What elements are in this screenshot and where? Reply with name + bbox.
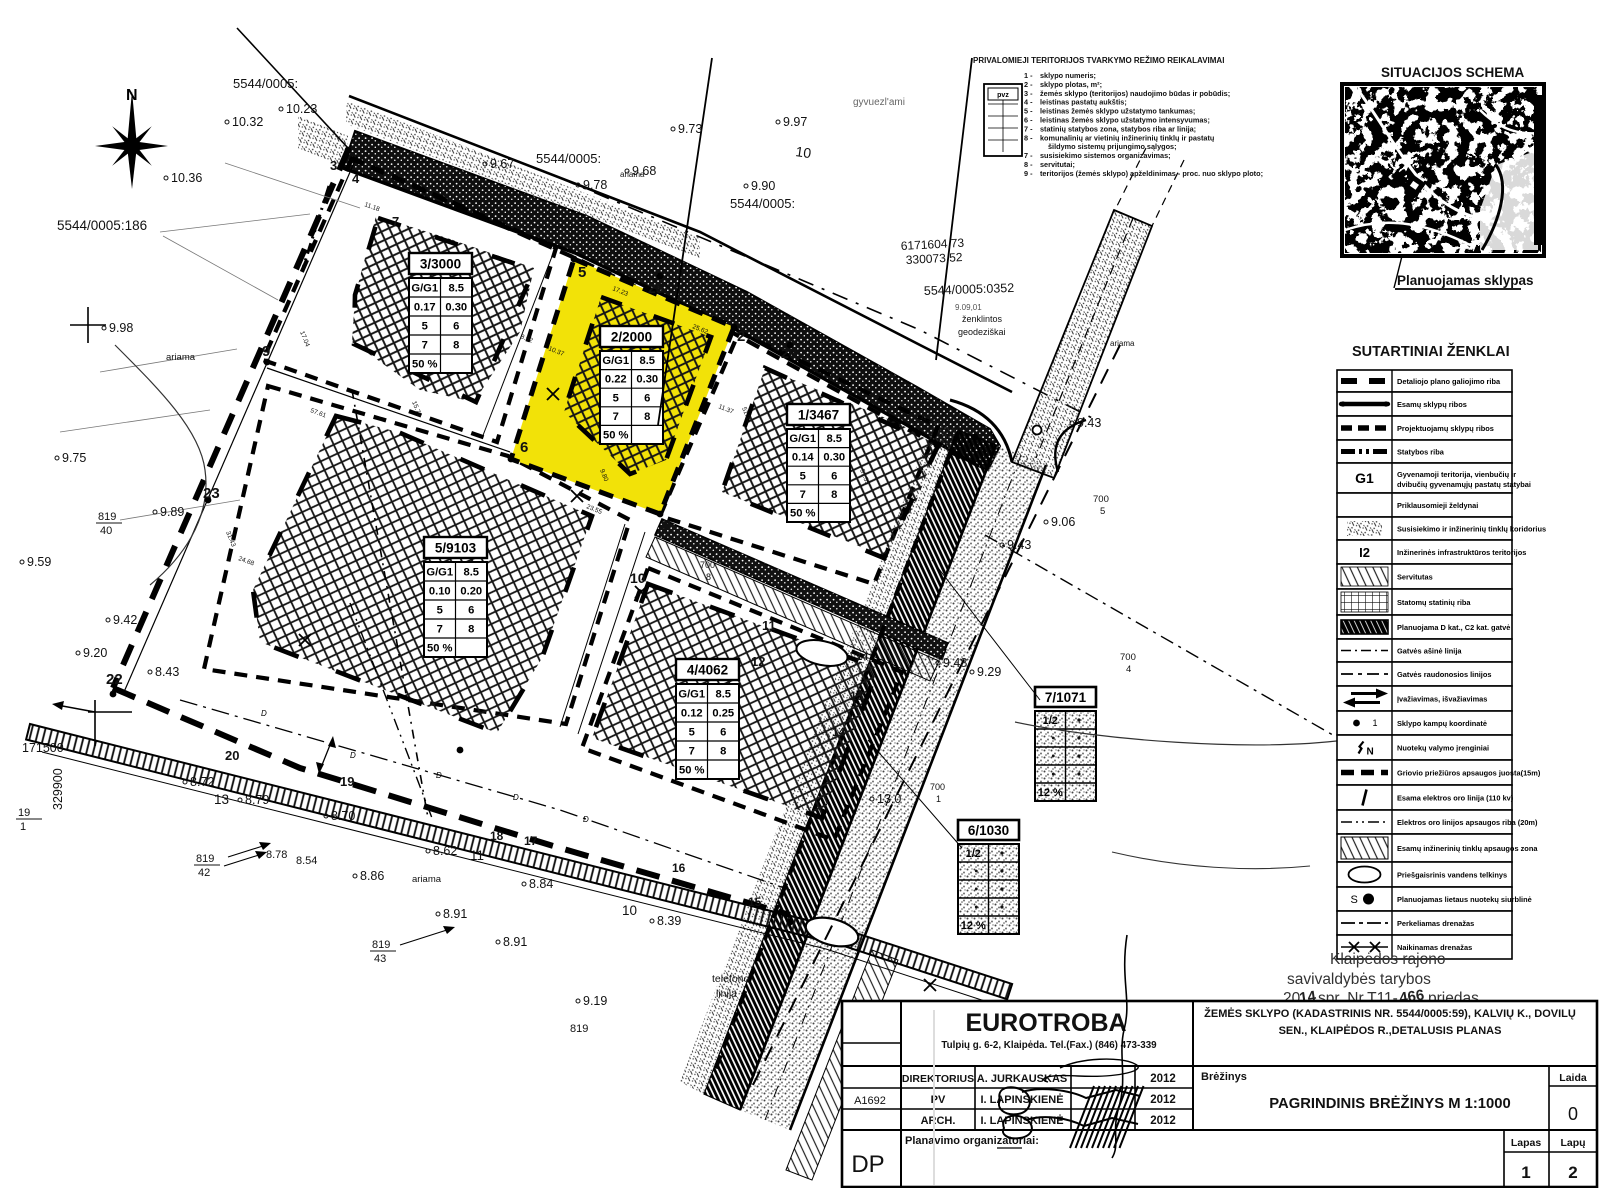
svg-text:10: 10: [622, 903, 637, 918]
svg-text:8.54: 8.54: [296, 855, 317, 867]
svg-text:6/1030: 6/1030: [968, 823, 1009, 838]
svg-text:I. LAPINSKIENĖ: I. LAPINSKIENĖ: [980, 1093, 1063, 1106]
svg-text:0: 0: [1568, 1104, 1578, 1124]
svg-text:5: 5: [689, 727, 695, 739]
svg-text:Lapų: Lapų: [1560, 1137, 1585, 1149]
svg-text:7 -: 7 -: [1024, 124, 1033, 133]
svg-text:700: 700: [1093, 494, 1109, 505]
svg-text:ženklintos: ženklintos: [962, 314, 1003, 324]
svg-text:8.78: 8.78: [266, 849, 287, 861]
svg-text:Planavimo organizatoriai:: Planavimo organizatoriai:: [905, 1135, 1039, 1147]
svg-text:17: 17: [524, 834, 538, 848]
svg-text:1: 1: [936, 794, 941, 804]
svg-text:EUROTROBA: EUROTROBA: [965, 1009, 1126, 1037]
svg-text:2 -: 2 -: [1024, 80, 1033, 89]
svg-text:8.84: 8.84: [529, 877, 553, 891]
svg-text:50 %: 50 %: [790, 508, 816, 520]
svg-text:9.73: 9.73: [678, 122, 702, 136]
svg-text:5: 5: [613, 392, 619, 404]
svg-text:Nuotekų valymo įrenginiai: Nuotekų valymo įrenginiai: [1397, 744, 1489, 753]
svg-text:D: D: [350, 751, 356, 760]
svg-text:2012: 2012: [1150, 1094, 1176, 1106]
svg-text:2: 2: [737, 328, 745, 345]
svg-text:sklypo numeris;: sklypo numeris;: [1040, 71, 1096, 80]
svg-text:13: 13: [850, 689, 864, 703]
svg-text:A1692: A1692: [854, 1095, 886, 1107]
svg-text:8.5: 8.5: [639, 355, 655, 367]
svg-text:8.62: 8.62: [433, 844, 457, 858]
svg-text:9.67: 9.67: [490, 157, 514, 171]
svg-text:Brėžinys: Brėžinys: [1201, 1071, 1247, 1083]
svg-text:171500: 171500: [22, 741, 64, 755]
svg-text:700: 700: [930, 782, 945, 792]
svg-text:819: 819: [196, 853, 214, 865]
svg-text:šildymo sistemų prijungimo sąl: šildymo sistemų prijungimo sąlygos;: [1048, 142, 1177, 151]
svg-text:Projektuojamų sklypų ribos: Projektuojamų sklypų ribos: [1397, 424, 1494, 433]
svg-text:G/G1: G/G1: [789, 433, 816, 445]
svg-text:G/G1: G/G1: [426, 567, 453, 579]
svg-text:0.22: 0.22: [605, 374, 627, 386]
svg-text:Tulpių g. 6-2, Klaipėda. Tel.(: Tulpių g. 6-2, Klaipėda. Tel.(Fax.) (846…: [941, 1040, 1157, 1051]
svg-text:ariama: ariama: [1110, 339, 1135, 348]
svg-text:6: 6: [520, 439, 528, 456]
svg-text:22: 22: [106, 671, 123, 688]
svg-text:Susisiekimo ir inžinerinių tin: Susisiekimo ir inžinerinių tinklų korido…: [1397, 525, 1546, 534]
svg-text:8.79: 8.79: [245, 793, 269, 807]
svg-text:Priešgaisrinis vandens telkiny: Priešgaisrinis vandens telkinys: [1397, 871, 1507, 880]
svg-text:9.59: 9.59: [27, 555, 51, 569]
svg-text:42: 42: [198, 867, 210, 879]
svg-text:8 -: 8 -: [1024, 160, 1033, 169]
svg-text:Griovio priežiūros apsaugos ju: Griovio priežiūros apsaugos juosta(15m): [1397, 769, 1541, 778]
svg-text:2012: 2012: [1150, 1073, 1176, 1085]
svg-text:12: 12: [751, 654, 765, 669]
svg-text:9.43: 9.43: [1077, 416, 1101, 430]
svg-text:9 -: 9 -: [1024, 169, 1033, 178]
svg-text:3: 3: [663, 517, 671, 534]
svg-text:8 -: 8 -: [1024, 133, 1033, 142]
svg-text:telefono: telefono: [712, 973, 750, 985]
svg-text:ariama: ariama: [412, 874, 442, 885]
svg-text:Elektros oro linijos apsaugos: Elektros oro linijos apsaugos riba (20m): [1397, 818, 1538, 827]
svg-text:0.14: 0.14: [792, 452, 815, 464]
svg-text:I2: I2: [1359, 545, 1370, 560]
svg-text:6 -: 6 -: [1024, 116, 1033, 125]
svg-text:Detaliojo plano galiojimo riba: Detaliojo plano galiojimo riba: [1397, 377, 1501, 386]
svg-text:819: 819: [570, 1023, 588, 1035]
svg-text:D: D: [261, 709, 267, 718]
svg-text:7: 7: [422, 340, 428, 352]
svg-text:9.09,01: 9.09,01: [955, 303, 982, 312]
svg-text:8.72: 8.72: [190, 775, 214, 789]
svg-text:16: 16: [672, 861, 686, 875]
svg-text:8: 8: [720, 746, 726, 758]
svg-text:0.20: 0.20: [460, 586, 482, 598]
svg-text:D: D: [436, 771, 442, 780]
svg-text:6: 6: [720, 727, 726, 739]
svg-text:8.5: 8.5: [448, 283, 464, 295]
svg-text:leistinas pastatų aukštis;: leistinas pastatų aukštis;: [1040, 98, 1127, 107]
svg-text:9.19: 9.19: [583, 994, 607, 1008]
svg-text:12 %: 12 %: [961, 920, 986, 932]
svg-text:Gatvės raudonosios linijos: Gatvės raudonosios linijos: [1397, 670, 1491, 679]
svg-text:linija: linija: [716, 988, 737, 1000]
svg-text:9.98: 9.98: [109, 321, 133, 335]
svg-text:10.23: 10.23: [286, 102, 317, 116]
svg-text:S: S: [1351, 894, 1358, 906]
svg-text:6: 6: [831, 470, 837, 482]
svg-text:Planuojamas lietaus nuotekų si: Planuojamas lietaus nuotekų siurblinė: [1397, 895, 1532, 904]
svg-text:13.0: 13.0: [877, 792, 901, 806]
svg-text:5/9103: 5/9103: [435, 541, 477, 556]
svg-text:Perkeliamas drenažas: Perkeliamas drenažas: [1397, 919, 1474, 928]
svg-text:Statybos riba: Statybos riba: [1397, 448, 1445, 457]
svg-text:2012: 2012: [1150, 1115, 1176, 1127]
svg-text:1: 1: [1373, 718, 1378, 728]
svg-text:PRIVALOMIEJI TERITORIJOS TVARK: PRIVALOMIEJI TERITORIJOS TVARKYMO REŽIMO…: [973, 56, 1224, 65]
svg-text:8: 8: [644, 411, 650, 423]
svg-text:ariama: ariama: [166, 352, 196, 363]
svg-text:5: 5: [422, 321, 428, 333]
svg-text:8: 8: [831, 489, 837, 501]
svg-text:9.90: 9.90: [751, 179, 775, 193]
svg-text:50 %: 50 %: [603, 430, 629, 442]
svg-text:8.5: 8.5: [715, 689, 731, 701]
svg-text:20: 20: [781, 345, 797, 361]
svg-text:5: 5: [437, 605, 443, 617]
svg-text:19: 19: [18, 807, 30, 819]
svg-text:3/3000: 3/3000: [420, 257, 461, 272]
svg-text:7: 7: [613, 411, 619, 423]
svg-text:25: 25: [648, 280, 664, 296]
svg-text:8: 8: [468, 624, 474, 636]
svg-text:11: 11: [762, 618, 776, 633]
svg-text:PAGRINDINIS BRĖŽINYS M 1:1000: PAGRINDINIS BRĖŽINYS M 1:1000: [1269, 1094, 1510, 1112]
svg-text:18: 18: [490, 829, 504, 843]
svg-text:leistinas žemės sklypo užstaty: leistinas žemės sklypo užstatymo tankuma…: [1040, 107, 1195, 116]
svg-text:ŽEMĖS SKLYPO (KADASTRINIS NR.: ŽEMĖS SKLYPO (KADASTRINIS NR. 5544/0005:…: [1204, 1007, 1576, 1020]
svg-text:8.70: 8.70: [331, 809, 355, 823]
svg-text:8.91: 8.91: [503, 935, 527, 949]
svg-text:9.20: 9.20: [83, 646, 107, 660]
svg-text:9.97: 9.97: [783, 115, 807, 129]
svg-text:PV: PV: [931, 1094, 946, 1106]
svg-text:7: 7: [392, 214, 399, 229]
svg-text:I. LAPINSKIENĖ: I. LAPINSKIENĖ: [980, 1114, 1063, 1127]
svg-text:0.17: 0.17: [414, 302, 436, 314]
svg-text:700: 700: [700, 560, 715, 570]
svg-text:Inžinerinės infrastruktūros te: Inžinerinės infrastruktūros teritorijos: [1397, 548, 1526, 557]
svg-text:50 %: 50 %: [427, 643, 453, 655]
svg-text:9.42: 9.42: [113, 613, 137, 627]
svg-text:N: N: [1367, 747, 1374, 758]
svg-text:0.12: 0.12: [681, 708, 703, 720]
svg-text:G/G1: G/G1: [602, 355, 629, 367]
svg-text:komunalinių ar vietinių inžine: komunalinių ar vietinių inžinerinių tink…: [1040, 133, 1214, 142]
svg-text:0.30: 0.30: [636, 374, 658, 386]
svg-text:23: 23: [203, 485, 220, 502]
svg-text:4 -: 4 -: [1024, 98, 1033, 107]
svg-text:19: 19: [340, 774, 354, 789]
svg-text:4: 4: [1126, 664, 1131, 675]
svg-text:Statomų statinių riba: Statomų statinių riba: [1397, 598, 1471, 607]
svg-text:5: 5: [578, 264, 586, 281]
svg-text:5544/0005:: 5544/0005:: [536, 151, 601, 166]
svg-text:0.25: 0.25: [712, 708, 734, 720]
svg-text:7 -: 7 -: [1024, 151, 1033, 160]
svg-text:43: 43: [374, 953, 386, 965]
svg-text:Servitutas: Servitutas: [1397, 573, 1433, 582]
svg-text:9: 9: [262, 343, 270, 360]
svg-text:819: 819: [98, 511, 116, 523]
svg-text:9.43: 9.43: [1007, 538, 1031, 552]
svg-text:15: 15: [748, 895, 762, 909]
svg-text:9.06: 9.06: [1051, 515, 1075, 529]
svg-text:5544/0005:: 5544/0005:: [233, 76, 298, 91]
svg-text:5544/0005:: 5544/0005:: [730, 196, 795, 211]
svg-text:11: 11: [470, 848, 484, 863]
svg-text:0.30: 0.30: [823, 452, 845, 464]
svg-text:D: D: [513, 793, 519, 802]
svg-text:leistinas žemės sklypo užstaty: leistinas žemės sklypo užstatymo intensy…: [1040, 116, 1210, 125]
svg-text:servitutai;: servitutai;: [1040, 160, 1075, 169]
svg-text:Priklausomieji želdynai: Priklausomieji želdynai: [1397, 501, 1478, 510]
svg-text:10: 10: [630, 570, 646, 586]
svg-text:3: 3: [330, 158, 337, 173]
svg-text:50 %: 50 %: [412, 359, 438, 371]
svg-text:819: 819: [372, 939, 390, 951]
svg-text:G/G1: G/G1: [411, 283, 438, 295]
svg-text:14: 14: [832, 725, 846, 739]
svg-text:Klaipėdos rajono: Klaipėdos rajono: [1330, 951, 1445, 968]
svg-text:susisiekimo sistemos organizav: susisiekimo sistemos organizavimas;: [1040, 151, 1171, 160]
svg-text:12 %: 12 %: [1038, 787, 1063, 799]
svg-text:9.29: 9.29: [977, 665, 1001, 679]
svg-text:8.5: 8.5: [826, 433, 842, 445]
svg-text:20: 20: [225, 748, 239, 763]
svg-text:DP: DP: [851, 1151, 884, 1178]
svg-text:6: 6: [468, 605, 474, 617]
svg-text:4/4062: 4/4062: [687, 663, 728, 678]
svg-text:8.5: 8.5: [463, 567, 479, 579]
svg-text:3 -: 3 -: [1024, 89, 1033, 98]
svg-text:2/2000: 2/2000: [611, 330, 652, 345]
svg-text:1/2: 1/2: [1043, 715, 1058, 727]
svg-text:40: 40: [100, 525, 112, 537]
svg-text:Sklypo kampų koordinatė: Sklypo kampų koordinatė: [1397, 719, 1487, 728]
svg-text:9.89: 9.89: [160, 505, 184, 519]
svg-text:Lapas: Lapas: [1511, 1137, 1542, 1149]
svg-text:SUTARTINIAI ŽENKLAI: SUTARTINIAI ŽENKLAI: [1352, 342, 1510, 360]
svg-text:330073.52: 330073.52: [905, 250, 963, 267]
svg-text:7: 7: [437, 624, 443, 636]
svg-text:gyvuezl'ami: gyvuezl'ami: [853, 97, 905, 108]
svg-text:14: 14: [856, 651, 869, 663]
svg-text:žemės sklypo (teritorijos) nau: žemės sklypo (teritorijos) naudojimo būd…: [1040, 89, 1230, 98]
svg-text:DIREKTORIUS: DIREKTORIUS: [902, 1073, 974, 1085]
svg-text:Esama elektros oro linija (110: Esama elektros oro linija (110 kv): [1397, 794, 1514, 803]
svg-text:9.75: 9.75: [62, 451, 86, 465]
svg-text:10.32: 10.32: [232, 115, 263, 129]
svg-text:SITUACIJOS SCHEMA: SITUACIJOS SCHEMA: [1381, 65, 1525, 80]
svg-text:7: 7: [689, 746, 695, 758]
svg-text:Planuojama D kat., C2 kat. gat: Planuojama D kat., C2 kat. gatvė: [1397, 623, 1510, 632]
svg-text:9.48: 9.48: [943, 656, 967, 670]
svg-text:4: 4: [352, 171, 360, 186]
svg-text:1: 1: [20, 821, 26, 833]
svg-text:50 %: 50 %: [679, 765, 705, 777]
svg-text:G1: G1: [1355, 470, 1374, 486]
svg-text:5: 5: [800, 470, 806, 482]
svg-text:Įvažiavimas, išvažiavimas: Įvažiavimas, išvažiavimas: [1397, 695, 1487, 704]
svg-text:1/2: 1/2: [966, 848, 981, 860]
svg-text:Planuojamas sklypas: Planuojamas sklypas: [1397, 273, 1534, 288]
svg-text:8: 8: [706, 572, 711, 582]
svg-text:9.78: 9.78: [583, 178, 607, 192]
svg-text:ARCH.: ARCH.: [921, 1115, 956, 1127]
svg-text:0.30: 0.30: [445, 302, 467, 314]
svg-text:SEN., KLAIPĖDOS R.,DETALUSIS P: SEN., KLAIPĖDOS R.,DETALUSIS PLANAS: [1279, 1024, 1502, 1037]
svg-text:10: 10: [795, 143, 813, 161]
svg-text:5 -: 5 -: [1024, 107, 1033, 116]
svg-text:8: 8: [453, 340, 459, 352]
svg-text:5: 5: [1100, 506, 1105, 517]
svg-text:geodeziškai: geodeziškai: [958, 327, 1006, 337]
svg-text:N: N: [126, 87, 138, 104]
svg-text:329900: 329900: [51, 768, 65, 810]
svg-text:Laida: Laida: [1559, 1072, 1587, 1084]
svg-text:D: D: [583, 815, 589, 824]
svg-text:Esamų inžinerinių tinklų apsau: Esamų inžinerinių tinklų apsaugos zona: [1397, 844, 1538, 853]
svg-text:G/G1: G/G1: [678, 689, 705, 701]
svg-text:2: 2: [1568, 1163, 1577, 1182]
svg-text:8.39: 8.39: [657, 914, 681, 928]
svg-text:6: 6: [453, 321, 459, 333]
svg-text:8.86: 8.86: [360, 869, 384, 883]
svg-text:savivaldybės tarybos: savivaldybės tarybos: [1287, 971, 1431, 988]
svg-text:dvibučių gyvenamųjų pastatų st: dvibučių gyvenamųjų pastatų statybai: [1397, 480, 1531, 489]
svg-text:1: 1: [1521, 1163, 1530, 1182]
svg-text:teritorijos (žemės sklypo) apž: teritorijos (žemės sklypo) apželdinimas …: [1040, 169, 1263, 178]
svg-text:6: 6: [644, 392, 650, 404]
svg-text:sklypo plotas, m²;: sklypo plotas, m²;: [1040, 80, 1102, 89]
svg-text:1 -: 1 -: [1024, 71, 1033, 80]
svg-text:Gatvės ašinė linija: Gatvės ašinė linija: [1397, 647, 1462, 656]
svg-text:1/3467: 1/3467: [798, 408, 839, 423]
svg-text:5544/0005:186: 5544/0005:186: [57, 218, 147, 233]
svg-text:8.43: 8.43: [155, 665, 179, 679]
svg-text:statinių statybos zona, statyb: statinių statybos zona, statybos riba ar…: [1040, 124, 1196, 133]
svg-text:700: 700: [1120, 652, 1136, 663]
svg-text:0.10: 0.10: [429, 586, 451, 598]
svg-text:7: 7: [800, 489, 806, 501]
svg-text:10.36: 10.36: [171, 171, 202, 185]
svg-text:Gyvenamoji teritorija, vienbuč: Gyvenamoji teritorija, vienbučių ir: [1397, 470, 1516, 479]
svg-text:7/1071: 7/1071: [1045, 690, 1087, 705]
svg-text:Esamų sklypų ribos: Esamų sklypų ribos: [1397, 400, 1467, 409]
svg-text:pvz: pvz: [997, 92, 1009, 99]
svg-text:8.91: 8.91: [443, 907, 467, 921]
svg-text:ariama: ariama: [620, 170, 645, 179]
svg-text:A. JURKAUSKAS: A. JURKAUSKAS: [977, 1073, 1067, 1085]
svg-text:13: 13: [214, 792, 229, 807]
